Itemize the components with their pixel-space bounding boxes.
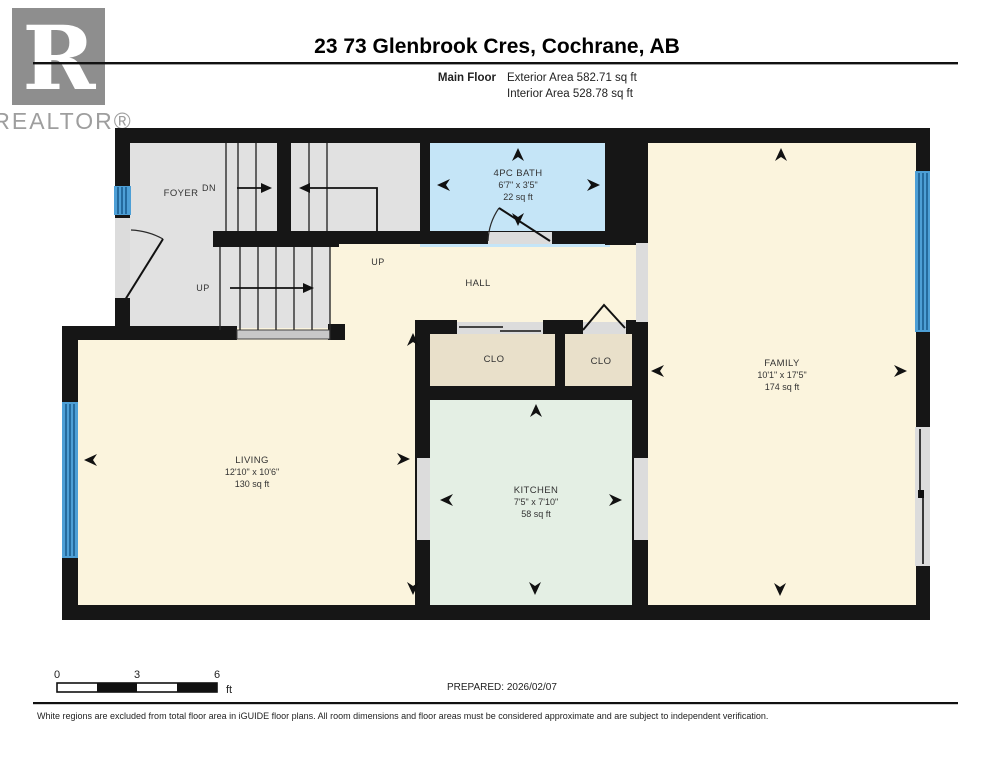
- opening-kitchen-family: [634, 458, 648, 540]
- realtor-logo-letter: R: [22, 6, 96, 110]
- bath-area: 22 sq ft: [503, 192, 533, 202]
- footer-rule: [33, 702, 958, 704]
- living-area: 130 sq ft: [235, 479, 270, 489]
- living-dims: 12'10" x 10'6": [225, 467, 279, 477]
- wall-bottom: [62, 605, 930, 620]
- exterior-area-label: Exterior Area 582.71 sq ft: [507, 72, 638, 84]
- bath-label: 4PC BATH: [494, 168, 543, 179]
- foyer-label: FOYER: [164, 188, 199, 199]
- foyer-window: [114, 186, 131, 215]
- realtor-logo: R REALTOR®: [0, 6, 133, 134]
- family-window: [915, 171, 930, 332]
- living-label: LIVING: [235, 455, 269, 466]
- closet-left-label: CLO: [484, 354, 505, 365]
- interior-area-label: Interior Area 528.78 sq ft: [507, 88, 634, 100]
- stair-landing-strip: [237, 330, 330, 339]
- wall-kitchen-top: [415, 386, 648, 400]
- wall-stair-divider: [277, 140, 291, 235]
- scale-bar-seg2: [97, 683, 137, 692]
- stairs-dn-label: DN: [202, 183, 216, 193]
- stairs-up-label: UP: [196, 283, 210, 293]
- title-rule: [33, 62, 958, 64]
- scale-tick-3: 3: [134, 669, 140, 681]
- hall-label: HALL: [465, 278, 490, 289]
- family-label: FAMILY: [764, 358, 800, 369]
- kitchen-label: KITCHEN: [514, 485, 559, 496]
- footer-disclaimer: White regions are excluded from total fl…: [37, 711, 768, 721]
- floorplan-canvas: R REALTOR® 23 73 Glenbrook Cres, Cochran…: [0, 0, 993, 768]
- family-dims: 10'1" x 17'5": [757, 370, 806, 380]
- kitchen-area: 58 sq ft: [521, 509, 551, 519]
- hall-up-label: UP: [371, 257, 385, 267]
- floorplan-page: R REALTOR® 23 73 Glenbrook Cres, Cochran…: [0, 0, 993, 768]
- wall-closet-top-c: [626, 320, 648, 334]
- wall-top: [115, 128, 930, 143]
- scale-bar: 0 3 6 ft: [54, 669, 232, 696]
- stair-landing-floor: [330, 128, 430, 243]
- family-area: 174 sq ft: [765, 382, 800, 392]
- closet-right-label: CLO: [591, 356, 612, 367]
- closet-left-sliding-door: [457, 322, 543, 334]
- floor-label: Main Floor: [438, 72, 497, 84]
- scale-bar-seg4: [177, 683, 217, 692]
- opening-hall-family: [636, 243, 648, 322]
- bath-dims: 6'7" x 3'5": [498, 180, 537, 190]
- page-title: 23 73 Glenbrook Cres, Cochrane, AB: [314, 35, 680, 58]
- wall-bath-family: [605, 128, 648, 245]
- living-window: [62, 402, 78, 558]
- scale-tick-0: 0: [54, 669, 60, 681]
- prepared-date: PREPARED: 2026/02/07: [447, 682, 557, 693]
- wall-closet-top-a: [415, 320, 457, 334]
- wall-bath-left: [420, 140, 430, 235]
- kitchen-dims: 7'5" x 7'10": [514, 497, 558, 507]
- wall-mid-horizontal: [213, 231, 339, 247]
- patio-door: [915, 427, 930, 566]
- wall-foyer-living-divider: [62, 326, 237, 340]
- opening-living-kitchen: [417, 458, 430, 540]
- wall-closet-mid: [555, 320, 565, 392]
- scale-unit: ft: [226, 684, 232, 696]
- realtor-brand-text: REALTOR®: [0, 108, 133, 134]
- scale-tick-6: 6: [214, 669, 220, 681]
